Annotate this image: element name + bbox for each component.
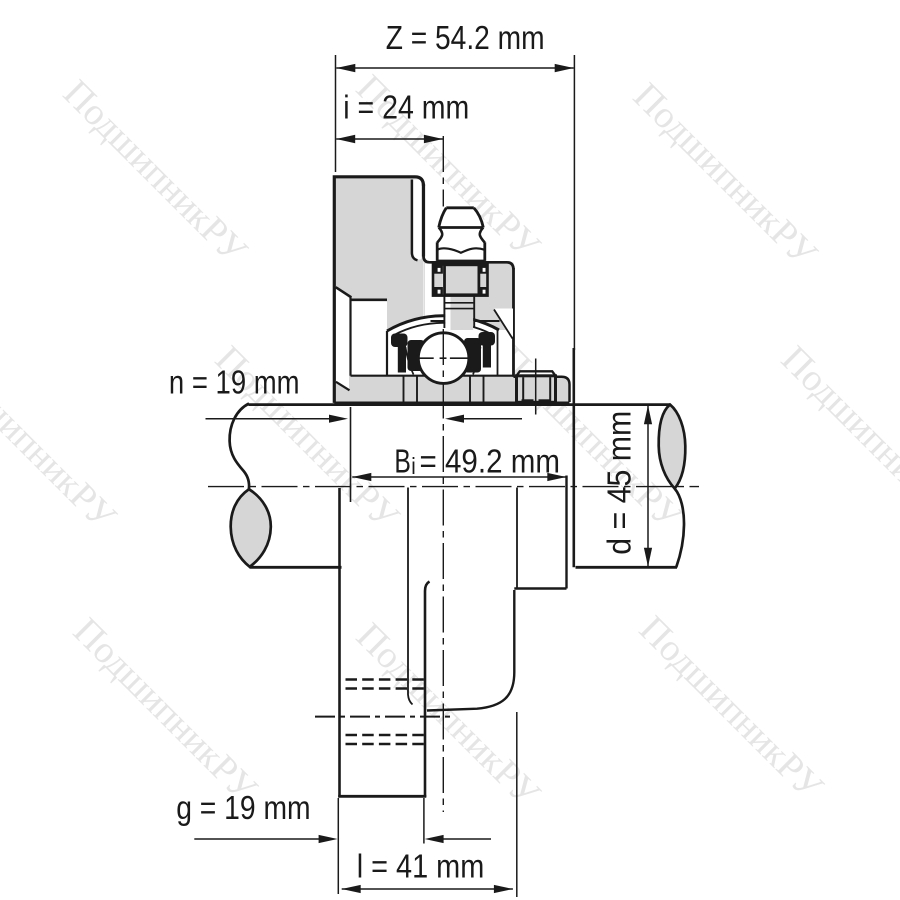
svg-text:n = 19 mm: n = 19 mm <box>169 364 300 401</box>
svg-text:l = 41 mm: l = 41 mm <box>357 849 485 886</box>
svg-text:i = 24 mm: i = 24 mm <box>343 89 469 126</box>
svg-text:= 49.2 mm: = 49.2 mm <box>420 443 561 480</box>
svg-text:g = 19 mm: g = 19 mm <box>176 790 310 827</box>
svg-text:d = 45 mm: d = 45 mm <box>602 411 639 555</box>
svg-text:B: B <box>394 443 411 480</box>
svg-text:Z = 54.2 mm: Z = 54.2 mm <box>386 20 545 57</box>
svg-text:i: i <box>411 453 416 479</box>
